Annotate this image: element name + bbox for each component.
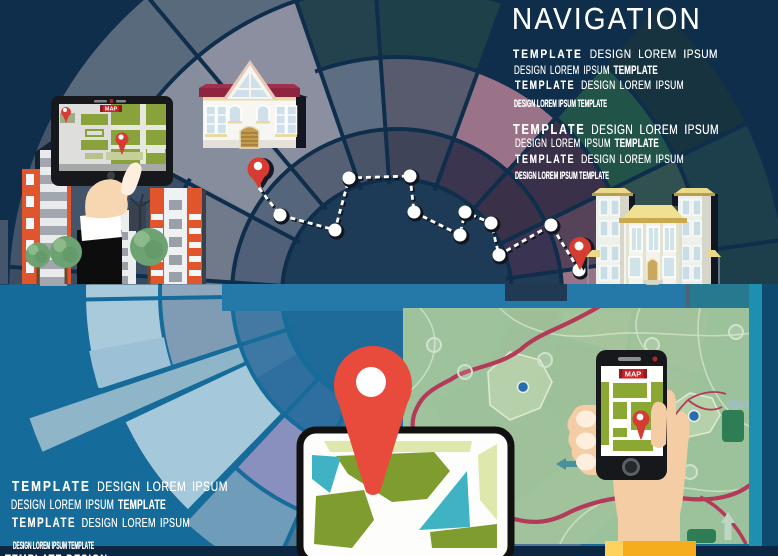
svg-text:MAP: MAP	[625, 370, 641, 379]
svg-text:MAP: MAP	[105, 107, 118, 113]
